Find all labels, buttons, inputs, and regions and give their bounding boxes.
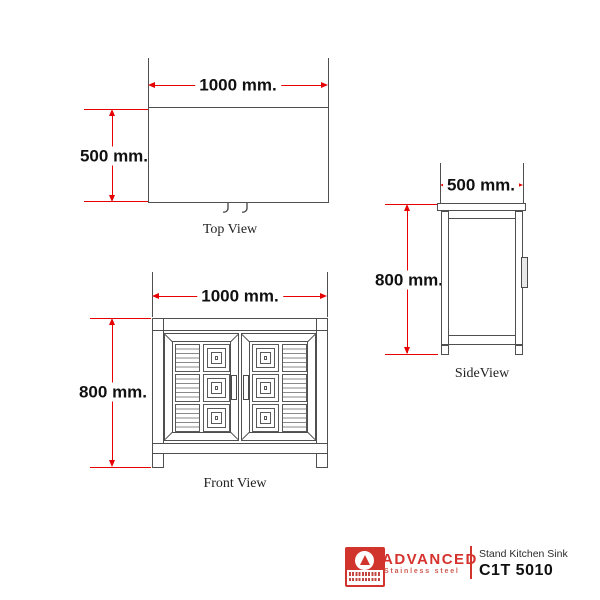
- square-panel: [252, 374, 279, 402]
- extension-line: [90, 467, 151, 468]
- arrowhead-left-icon: [152, 293, 159, 299]
- arrowhead-down-icon: [109, 195, 115, 202]
- arrowhead-up-icon: [109, 318, 115, 325]
- extension-line: [523, 163, 524, 203]
- square-panel: [203, 404, 230, 432]
- square-panel: [203, 374, 230, 402]
- arrowhead-up-icon: [404, 204, 410, 211]
- brand-name: ADVANCED: [382, 551, 478, 568]
- top-view-width-label: 1000 mm.: [195, 76, 281, 95]
- logo-circle-icon: [355, 551, 374, 570]
- left-door[interactable]: [164, 333, 239, 441]
- extension-line: [385, 354, 438, 355]
- footer-divider: [470, 546, 472, 579]
- logo-fine-print: [347, 570, 383, 585]
- louver-panel: [282, 374, 307, 402]
- square-panel: [252, 344, 279, 372]
- countertop-outline: [148, 107, 329, 203]
- louver-panel: [175, 344, 200, 372]
- side-view-height-label: 800 mm.: [371, 271, 447, 290]
- arrowhead-down-icon: [109, 460, 115, 467]
- product-name: Stand Kitchen Sink: [479, 548, 568, 560]
- arrowhead-right-icon: [320, 293, 327, 299]
- louver-panel: [175, 404, 200, 432]
- square-panel: [203, 344, 230, 372]
- top-view-depth-label: 500 mm.: [76, 147, 152, 166]
- technical-drawing-canvas: 1000 mm. 500 mm. Top View 1000 mm. 800 m…: [0, 0, 600, 600]
- cabinet-bottom-rail: [152, 443, 328, 454]
- logo-triangle-icon: [360, 555, 370, 565]
- product-model: C1T 5010: [479, 562, 553, 580]
- front-view-width-label: 1000 mm.: [197, 287, 283, 306]
- extension-line: [90, 318, 151, 319]
- cabinet-left-leg: [152, 453, 164, 468]
- extension-line: [84, 201, 148, 202]
- arrowhead-left-icon: [148, 82, 155, 88]
- arrowhead-up-icon: [109, 109, 115, 116]
- side-inner-top-line: [448, 218, 516, 219]
- side-door-handle[interactable]: [521, 257, 528, 288]
- brand-logo: [345, 547, 385, 587]
- side-top-slab: [437, 203, 526, 211]
- extension-line: [328, 58, 329, 107]
- side-back-leg: [515, 345, 523, 355]
- extension-line: [84, 109, 148, 110]
- top-view-caption: Top View: [203, 222, 257, 238]
- extension-line: [327, 272, 328, 317]
- louver-panel: [282, 344, 307, 372]
- side-view-caption: SideView: [455, 366, 509, 382]
- square-panel: [252, 404, 279, 432]
- arrowhead-right-icon: [321, 82, 328, 88]
- side-bottom-rail: [448, 335, 516, 345]
- arrowhead-down-icon: [404, 347, 410, 354]
- front-view-caption: Front View: [203, 476, 266, 492]
- side-view-depth-label: 500 mm.: [443, 176, 519, 195]
- cabinet-right-stile: [316, 330, 328, 454]
- right-door[interactable]: [241, 333, 316, 441]
- side-left-stile: [441, 211, 449, 345]
- extension-line: [385, 204, 438, 205]
- brand-tagline: Stainless steel: [384, 568, 460, 575]
- louver-panel: [175, 374, 200, 402]
- hinge-hooks-icon: [220, 202, 256, 215]
- cabinet-top-rail: [152, 318, 328, 331]
- side-front-leg: [441, 345, 449, 355]
- front-view-height-label: 800 mm.: [75, 383, 151, 402]
- left-door-handle[interactable]: [231, 375, 237, 400]
- right-door-handle[interactable]: [243, 375, 249, 400]
- cabinet-right-leg: [316, 453, 328, 468]
- louver-panel: [282, 404, 307, 432]
- cabinet-left-stile: [152, 330, 164, 454]
